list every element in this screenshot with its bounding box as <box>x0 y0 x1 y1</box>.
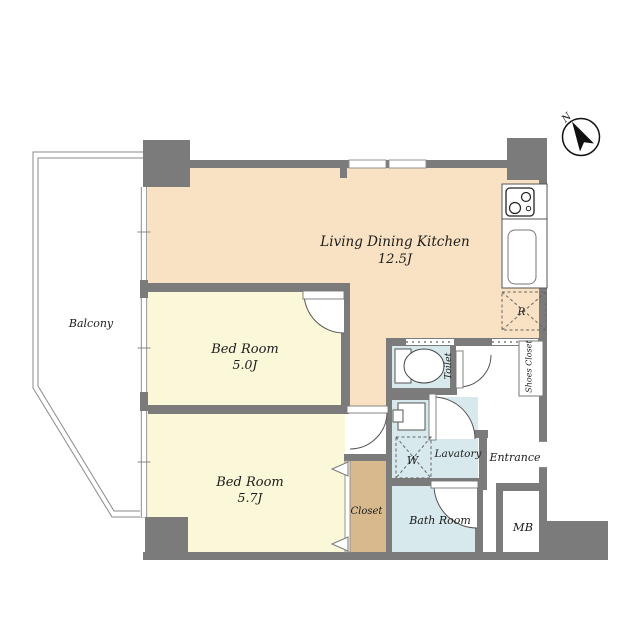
lavatory-faucet-icon <box>393 410 403 422</box>
room-ldk-lower <box>343 286 540 341</box>
wall-top-stub <box>340 168 347 178</box>
bedroom2-size-label: 5.7J <box>238 490 264 505</box>
ldk-size-label: 12.5J <box>378 252 413 267</box>
bedroom2-label: Bed Room <box>215 475 283 490</box>
mb-label: MB <box>512 520 533 534</box>
bedroom2-door-leaf <box>347 406 388 413</box>
balcony: Balcony <box>33 152 145 517</box>
toilet-bowl-icon <box>404 349 444 383</box>
wall-mb-top <box>496 483 547 491</box>
kitchen-sink-icon <box>508 230 536 284</box>
ldk-label: Living Dining Kitchen <box>319 234 469 250</box>
wall-pillar-bottom-left <box>145 517 188 557</box>
left-wall-stub-1 <box>140 280 148 298</box>
wall-lavatory-top <box>386 392 432 400</box>
washer-label: W <box>407 454 420 467</box>
bedroom1-door-leaf <box>303 291 344 299</box>
wall-right-lower <box>539 468 547 554</box>
left-wall-stub-2 <box>140 392 148 411</box>
room-ldk <box>148 167 540 286</box>
balcony-floor <box>33 152 143 517</box>
balcony-label: Balcony <box>68 317 114 330</box>
wall-bedroom-divider <box>143 405 349 414</box>
shoes-closet-label: Shoes Closet <box>525 340 534 393</box>
toilet-label: Toilet <box>443 352 454 379</box>
stove-burner-icon <box>522 193 531 202</box>
bathroom-label: Bath Room <box>408 514 471 527</box>
wall-pillar-top-right <box>507 138 547 180</box>
room-ldk-hallway <box>346 341 390 412</box>
hall-door-leaf <box>456 351 463 388</box>
wall-wet-block-left <box>386 338 392 554</box>
floor-plan-drawing: Balcony <box>0 0 640 640</box>
bathroom-door-leaf <box>431 481 478 488</box>
wall-mb-left <box>496 483 503 554</box>
refrigerator-label: R <box>517 306 526 318</box>
stove-burner-icon <box>510 203 521 214</box>
wall-closet-top <box>344 454 392 461</box>
bedroom1-label: Bed Room <box>210 342 278 357</box>
compass: N <box>559 110 599 155</box>
wall-bottom <box>143 552 547 560</box>
closet-label: Closet <box>351 506 384 517</box>
bedroom1-size-label: 5.0J <box>233 357 259 372</box>
top-window-pane-1 <box>349 160 386 168</box>
top-window-pane-2 <box>389 160 426 168</box>
stove-icon <box>506 188 534 216</box>
stove-knob-icon <box>526 206 530 210</box>
lavatory-label: Lavatory <box>434 448 483 460</box>
wall-pillar-top-left <box>143 140 190 187</box>
lavatory-door-leaf <box>429 394 436 440</box>
entrance-label: Entrance <box>488 451 541 464</box>
wall-block-bottom-right <box>547 521 608 560</box>
wall-top <box>188 160 507 168</box>
floor-plan: Balcony <box>0 0 640 640</box>
bedroom2-door-swing <box>350 412 387 449</box>
